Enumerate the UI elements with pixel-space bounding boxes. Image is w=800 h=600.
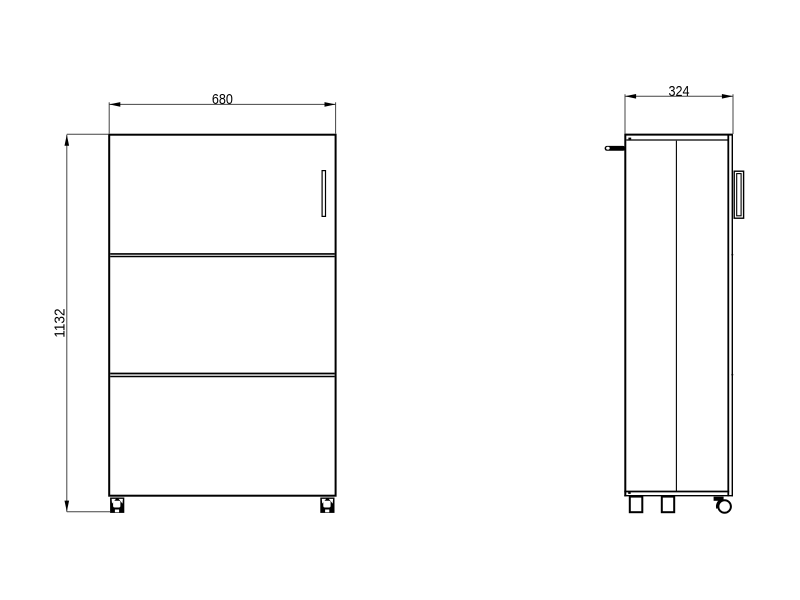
svg-text:324: 324 <box>669 84 690 100</box>
svg-text:1132: 1132 <box>53 308 69 337</box>
svg-text:680: 680 <box>212 92 233 108</box>
